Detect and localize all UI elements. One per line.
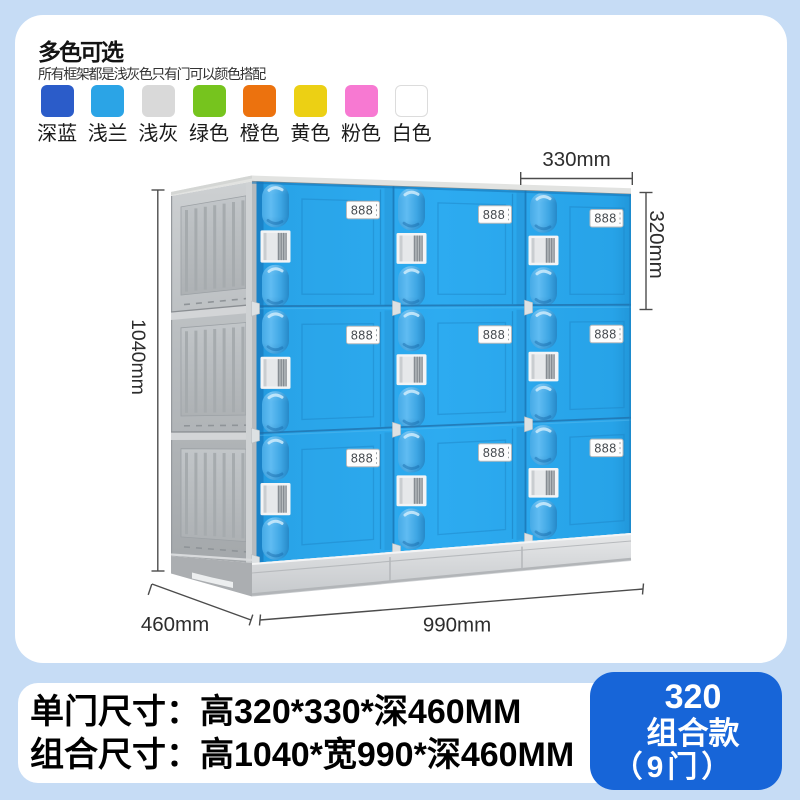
svg-text:888: 888	[594, 328, 616, 342]
svg-text:888: 888	[483, 208, 505, 222]
svg-text:320mm: 320mm	[645, 210, 668, 278]
svg-text:888: 888	[351, 451, 373, 465]
svg-text:888: 888	[483, 328, 505, 342]
svg-text:888: 888	[594, 441, 616, 455]
svg-text:888: 888	[483, 446, 505, 460]
svg-text:888: 888	[351, 203, 373, 217]
svg-text:330mm: 330mm	[542, 148, 610, 171]
svg-text:1040mm: 1040mm	[127, 319, 149, 395]
svg-text:990mm: 990mm	[423, 614, 491, 637]
svg-text:888: 888	[594, 212, 616, 226]
svg-text:460mm: 460mm	[141, 613, 209, 636]
svg-text:888: 888	[351, 328, 373, 342]
